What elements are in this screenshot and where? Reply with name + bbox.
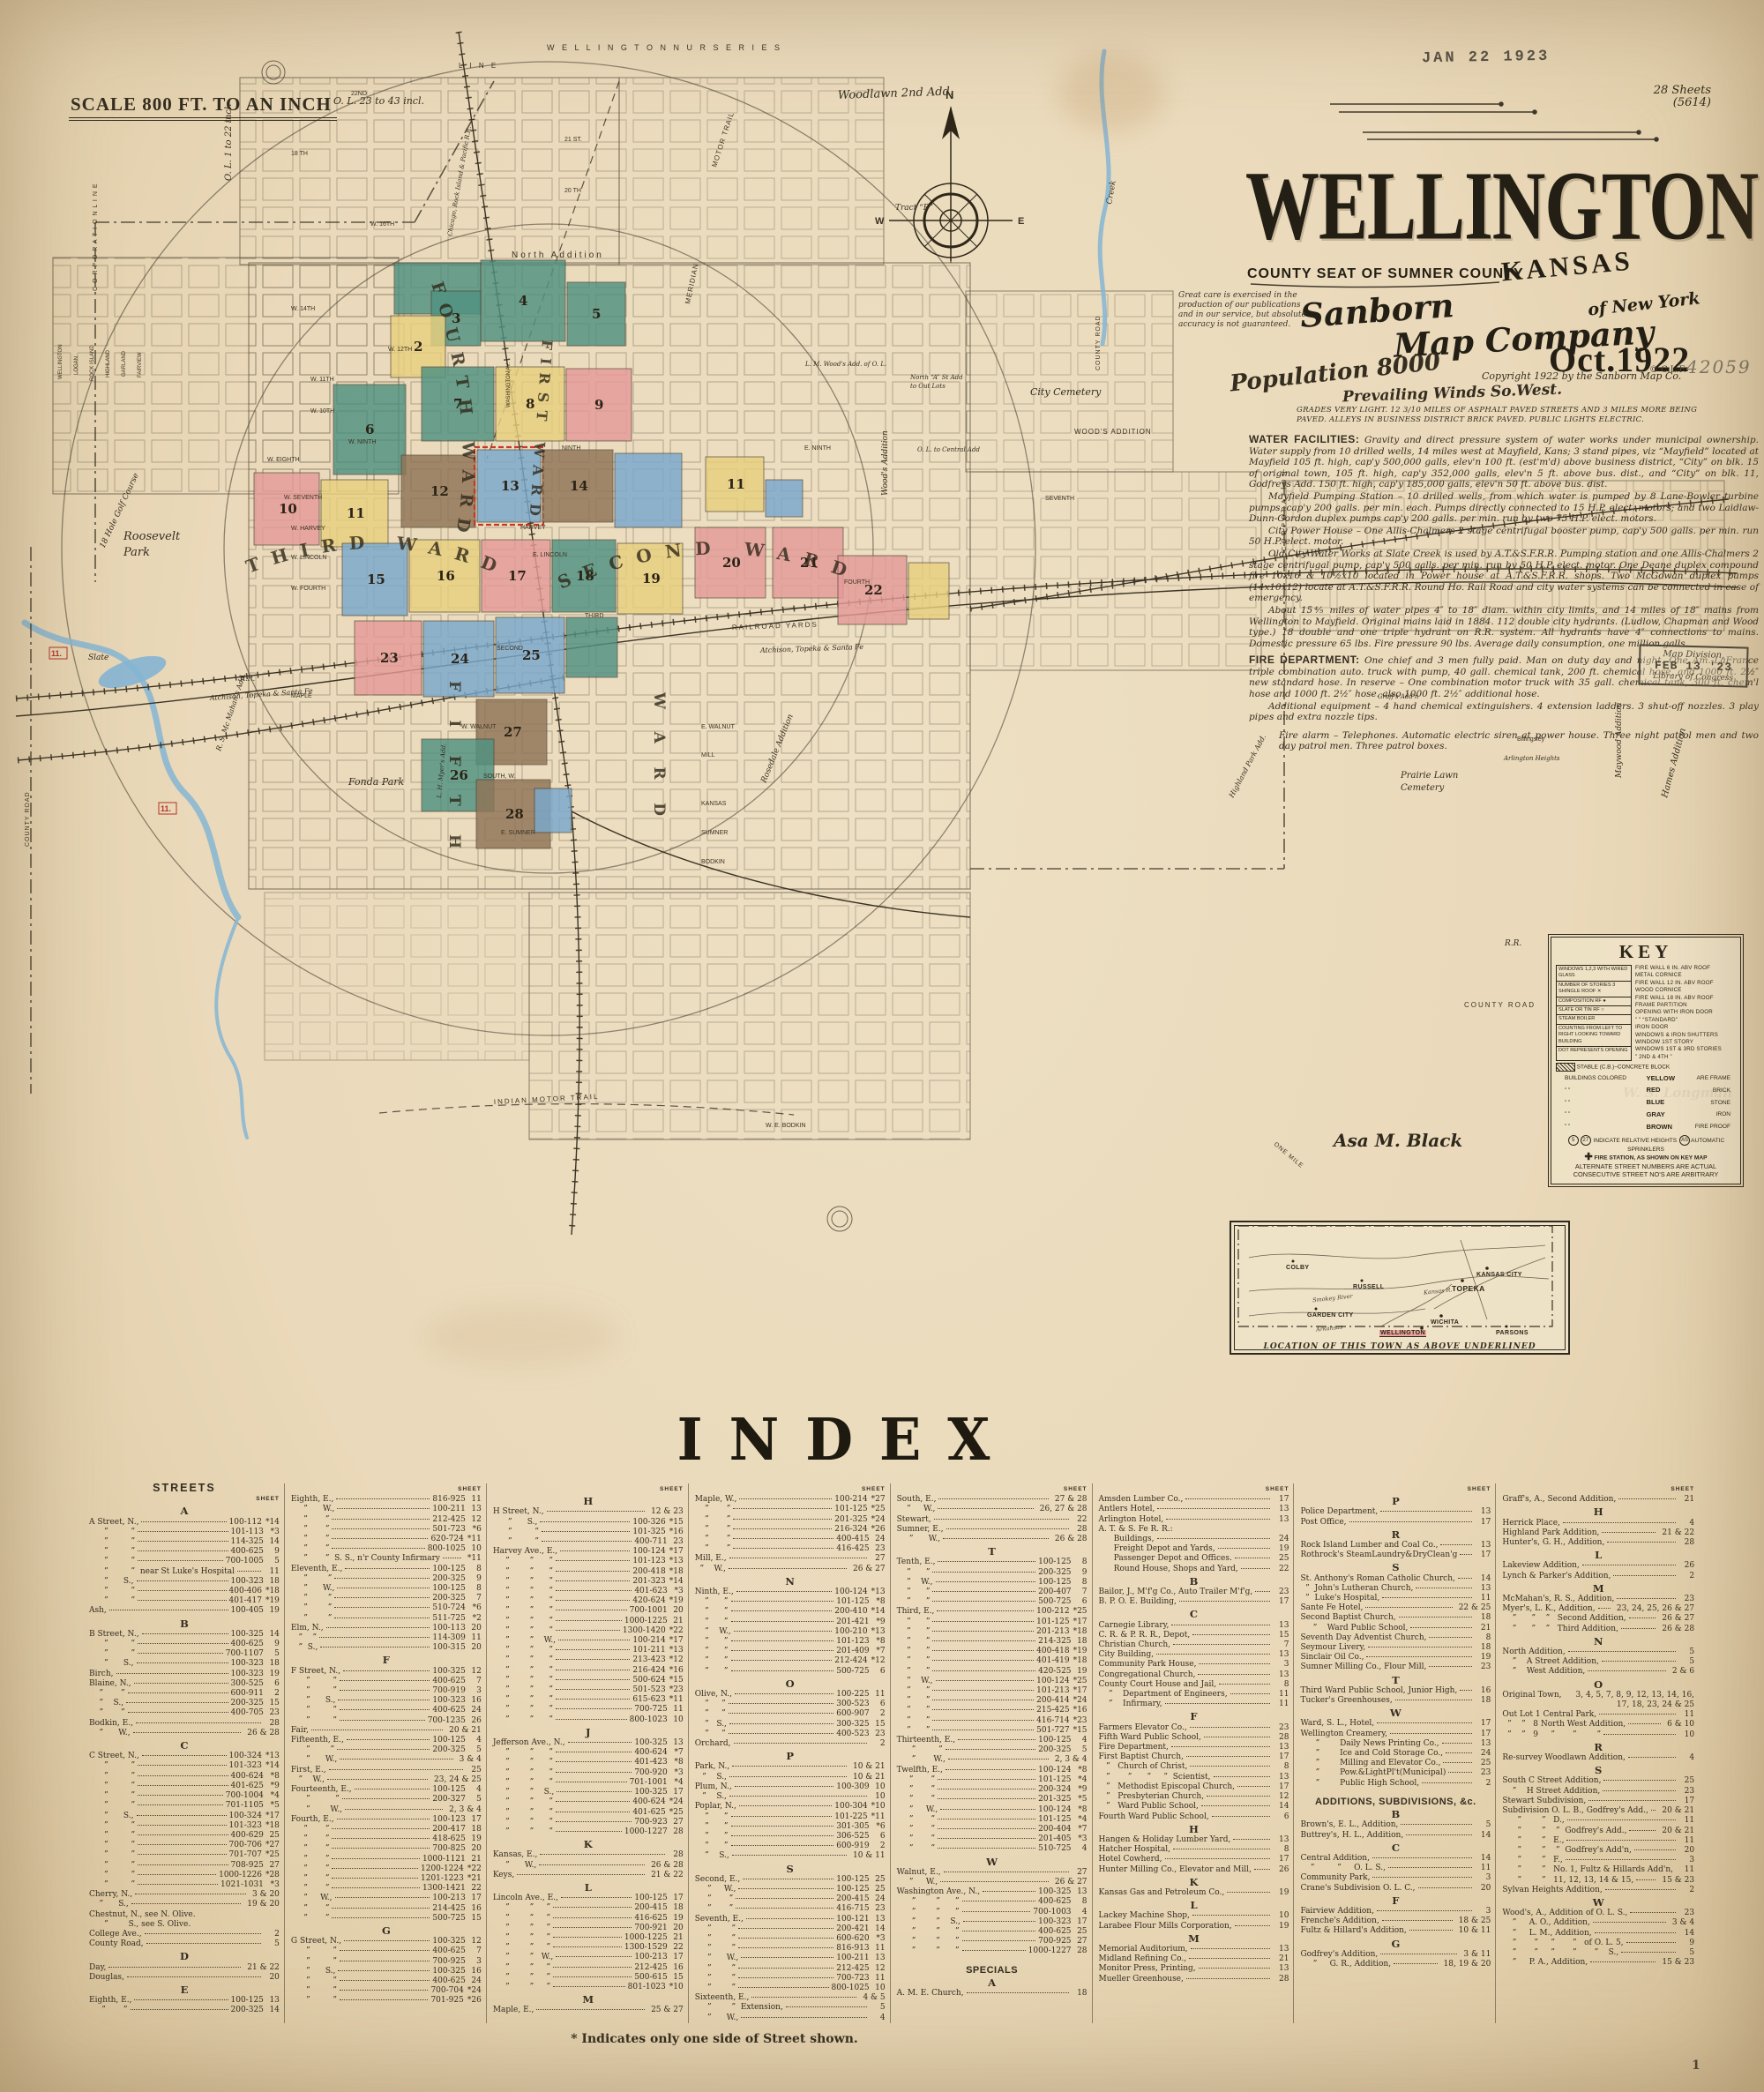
index-entry: ” ”101-325*16 bbox=[493, 1528, 684, 1537]
index-entry-name: Stewart, bbox=[897, 1515, 931, 1525]
index-entry-range: 418-625 bbox=[432, 1834, 465, 1844]
index-entry-sheet: *17 bbox=[669, 1636, 684, 1646]
dotted-leader bbox=[556, 1590, 632, 1591]
dotted-leader bbox=[1440, 1544, 1472, 1545]
index-entry: Carnegie Library,13 bbox=[1099, 1621, 1289, 1631]
index-entry-name: College Ave., bbox=[89, 1930, 142, 1939]
index-entry-name: Congregational Church, bbox=[1099, 1670, 1196, 1680]
index-entry-name: ” ” ” Godfrey's Add., bbox=[1502, 1827, 1626, 1836]
dotted-leader bbox=[732, 1766, 847, 1767]
index-entry-name: ” ” bbox=[897, 1597, 931, 1607]
dotted-leader bbox=[1372, 1877, 1472, 1878]
dotted-leader bbox=[1349, 1521, 1473, 1522]
index-entry-name: Kansas, E., bbox=[493, 1850, 538, 1860]
index-entry-sheet: *18 bbox=[265, 1587, 280, 1596]
index-entry-sheet: *7 bbox=[873, 1647, 886, 1656]
index-entry-sheet: *9 bbox=[873, 1618, 886, 1627]
index-entry: ” ”701-1105*5 bbox=[89, 1801, 280, 1811]
dotted-leader bbox=[1192, 1915, 1271, 1916]
index-entry-sheet: 20 bbox=[469, 1844, 482, 1854]
index-entry-sheet: 15 bbox=[469, 1914, 482, 1924]
index-entry: ” W.,23, 24 & 25 bbox=[291, 1775, 482, 1785]
index-entry-sheet: 11 bbox=[1682, 1836, 1694, 1846]
index-entry-name: ” ” ” bbox=[493, 1587, 553, 1596]
index-entry: ” ”400-70523 bbox=[89, 1708, 280, 1718]
index-entry-name: ” ” bbox=[897, 1588, 931, 1597]
index-entry-sheet: 4 bbox=[469, 1785, 482, 1795]
index-entry-name: A. T. & S. Fe R. R.: bbox=[1099, 1525, 1173, 1535]
index-entry-name: Frenche's Addition, bbox=[1300, 1916, 1379, 1926]
index-entry-name: ” ” 11, 12, 13, 14 & 15, bbox=[1502, 1876, 1633, 1886]
index-entry: Sumner Milling Co., Flour Mill,23 bbox=[1300, 1662, 1491, 1672]
index-entry-name: ” W., bbox=[695, 1885, 736, 1894]
index-entry: Memorial Auditorium,13 bbox=[1099, 1945, 1289, 1954]
index-entry-name: ” Pow.&LightPl't(Municipal) bbox=[1300, 1768, 1446, 1778]
index-entry-name: ” S., bbox=[291, 1696, 336, 1706]
index-entry: C. R. & P. R. R., Depot,15 bbox=[1099, 1631, 1289, 1640]
map-label: C O R P O R A T I O N L I N E bbox=[93, 183, 99, 292]
index-entry-sheet: 17 bbox=[1276, 1495, 1289, 1505]
map-label: E. SUMNER bbox=[501, 830, 535, 836]
index-entry: ” ” ”1300-1420*22 bbox=[493, 1626, 684, 1636]
index-entry-range: 615-623 bbox=[632, 1695, 665, 1705]
county-subtitle: COUNTY SEAT OF SUMNER COUNTY bbox=[1247, 266, 1524, 282]
index-entry: ” ”200-404*7 bbox=[897, 1825, 1088, 1834]
index-entry-sheet: 13 bbox=[1276, 1621, 1289, 1631]
index-entry-name: ” Luke's Hospital, bbox=[1300, 1594, 1379, 1603]
index-entry-name: ” ” ” ” ” S., bbox=[1502, 1948, 1618, 1958]
index-entry: ” ” ”700-92120 bbox=[493, 1924, 684, 1933]
index-entry-range: 400-406 bbox=[229, 1587, 262, 1596]
dotted-leader bbox=[556, 1956, 632, 1957]
index-entry-name: ” ” bbox=[291, 1976, 337, 1986]
dotted-leader bbox=[126, 1702, 228, 1703]
compass-w: W bbox=[875, 216, 885, 227]
index-entry: Kansas, E.,28 bbox=[493, 1850, 684, 1860]
dotted-leader bbox=[1568, 1651, 1676, 1652]
index-entry-range: 114-309 bbox=[432, 1633, 465, 1643]
dotted-leader bbox=[536, 2009, 645, 2010]
key-right-list: FIRE WALL 6 IN. ABV ROOFMETAL CORNICEFIR… bbox=[1635, 965, 1736, 1061]
index-entry-range: 100-113 bbox=[432, 1624, 465, 1633]
index-entry: Lackey Machine Shop,10 bbox=[1099, 1911, 1289, 1921]
index-entry: A. M. E. Church,18 bbox=[897, 1989, 1088, 1999]
index-entry: Walnut, E.,27 bbox=[897, 1868, 1088, 1878]
index-entry-name: Eighth, E., bbox=[89, 1996, 131, 2006]
index-entry: ” Ward Public School,21 bbox=[1300, 1624, 1491, 1633]
index-entry-sheet: 16 bbox=[469, 1967, 482, 1976]
index-entry-name: B. P. O. E. Building, bbox=[1099, 1597, 1177, 1607]
map-label: ROCK ISLAND bbox=[90, 345, 95, 381]
dotted-leader bbox=[556, 1630, 620, 1631]
index-entry-sheet: 27 bbox=[1075, 1868, 1088, 1878]
index-entry: ” ” ”212-42516 bbox=[493, 1963, 684, 1973]
index-entry-name: ” ” bbox=[291, 1795, 340, 1804]
index-entry: Blaine, N.,300-5256 bbox=[89, 1679, 280, 1689]
index-entry-name: ” ” bbox=[897, 1795, 936, 1804]
inset-caption: LOCATION OF THIS TOWN AS ABOVE UNDERLINE… bbox=[1231, 1342, 1568, 1351]
dotted-leader bbox=[1199, 1663, 1270, 1664]
dotted-leader bbox=[1607, 1542, 1676, 1543]
dotted-leader bbox=[946, 1749, 1035, 1750]
index-entry-sheet: *6 bbox=[469, 1525, 482, 1535]
index-entry: ” ” near St Luke's Hospital11 bbox=[89, 1567, 280, 1577]
key-legend-line: FIRE WALL 18 IN. ABV ROOF bbox=[1635, 995, 1736, 1002]
facilities-text: WATER FACILITIES: Gravity and direct pre… bbox=[1249, 434, 1759, 753]
fire-station-icon: ✚ bbox=[1584, 1152, 1592, 1162]
key-legend-line: WINDOWS & IRON SHUTTERS bbox=[1635, 1032, 1736, 1039]
index-entry: Fourteenth, E.,100-1254 bbox=[291, 1785, 482, 1795]
dotted-leader bbox=[1186, 1978, 1271, 1979]
index-entry: Passenger Depot and Offices.25 bbox=[1099, 1554, 1289, 1564]
index-entry-name: Olive, N., bbox=[695, 1690, 732, 1700]
index-entry: ” ” ”400-624*7 bbox=[493, 1748, 684, 1758]
index-entry-sheet: 13 bbox=[1478, 1584, 1491, 1594]
dotted-leader bbox=[1254, 1869, 1271, 1870]
index-entry-name: ” ” bbox=[897, 1568, 931, 1578]
index-entry-sheet: 6 bbox=[873, 1667, 886, 1677]
index-entry-name: ” W., bbox=[897, 1755, 946, 1765]
map-label: WASHINGTON AV. bbox=[506, 362, 512, 407]
dotted-leader bbox=[332, 1848, 430, 1849]
index-entry: Elm, N.,100-11320 bbox=[291, 1624, 482, 1633]
index-column: SHEETEighth, E.,816-92511 ” W.,100-21113… bbox=[284, 1483, 486, 2023]
index-entry: ” ”500-7256 bbox=[897, 1597, 1088, 1607]
dotted-leader bbox=[332, 1548, 424, 1549]
index-section-letter: B bbox=[1300, 1810, 1491, 1819]
dotted-leader bbox=[109, 1610, 228, 1610]
index-entry-range: 100-124 bbox=[1036, 1677, 1069, 1686]
index-entry-sheet: 3 bbox=[1276, 1660, 1289, 1670]
index-entry-name: ” ” bbox=[695, 1924, 736, 1934]
index-entry: ” ”800-102510 bbox=[695, 1984, 886, 1993]
index-entry-range: 700-704 bbox=[430, 1986, 463, 1996]
index-entry-name: ” ” bbox=[291, 1844, 330, 1854]
sprinkler-badge: AS bbox=[1679, 1135, 1690, 1146]
index-entry-sheet: 20 bbox=[469, 1624, 482, 1633]
index-entry-range: 420-525 bbox=[1038, 1667, 1071, 1677]
index-entry-sheet: *23 bbox=[1073, 1716, 1088, 1726]
dotted-leader bbox=[736, 1908, 833, 1909]
dotted-leader bbox=[1382, 1920, 1453, 1921]
index-entry-sheet: *24 bbox=[871, 1515, 886, 1525]
index-section-letter: R bbox=[1502, 1743, 1694, 1752]
index-entry: ” ”212-42512 bbox=[291, 1515, 482, 1525]
index-entry-name: ” ” bbox=[291, 1633, 317, 1643]
index-entry-name: ” ” bbox=[897, 1815, 936, 1825]
index-entry-name: ” Church of Christ, bbox=[1099, 1762, 1188, 1772]
index-entry-name: ” ” bbox=[695, 1974, 736, 1984]
index-entry: ” H Street Addition,23 bbox=[1502, 1787, 1694, 1797]
dotted-leader bbox=[1613, 1575, 1676, 1576]
index-entry: ” ”216-324*26 bbox=[695, 1525, 886, 1535]
index-entry-sheet: 13 bbox=[1478, 1739, 1491, 1749]
index-entry: Kansas Gas and Petroleum Co.,19 bbox=[1099, 1888, 1289, 1898]
index-entry-name: ” Presbyterian Church, bbox=[1099, 1792, 1205, 1802]
index-section-letter: C bbox=[1099, 1610, 1289, 1619]
index-entry-name: Chestnut, N., see N. Olive. bbox=[89, 1910, 196, 1920]
dotted-leader bbox=[334, 1607, 430, 1608]
dotted-leader bbox=[733, 1538, 833, 1539]
index-entry-sheet: 18 bbox=[1478, 1613, 1491, 1623]
index-entry-sheet: *18 bbox=[265, 1821, 280, 1831]
map-label: to Out Lots bbox=[910, 383, 946, 390]
dotted-leader bbox=[556, 1679, 630, 1680]
index-entry-name: Keys, bbox=[493, 1871, 514, 1880]
index-entry-sheet: 22 bbox=[1276, 1565, 1289, 1574]
index-entry-range: 101-125 bbox=[1038, 1775, 1071, 1785]
index-entry-sheet: 5 bbox=[873, 2003, 886, 2013]
index-entry-sheet: 18 bbox=[1075, 1989, 1088, 1999]
index-entry-range: 200-325 bbox=[432, 1745, 465, 1755]
index-entry: Hunter's, G. H., Addition,28 bbox=[1502, 1538, 1694, 1548]
water-paragraph: About 15⅘ miles of water pipes 4″ to 18″… bbox=[1249, 605, 1759, 649]
dotted-leader bbox=[345, 1568, 430, 1569]
index-entry-range: 400-625 bbox=[432, 1677, 465, 1686]
index-entry-name: ” ” bbox=[89, 1537, 135, 1547]
index-entry-name: Sumner Milling Co., Flour Mill, bbox=[1300, 1662, 1426, 1672]
index-entry-name: ” Milling and Elevator Co., bbox=[1300, 1759, 1440, 1768]
index-entry: ” Ward Public School,14 bbox=[1099, 1802, 1289, 1812]
index-entry-range: 212-424 bbox=[834, 1656, 867, 1666]
index-entry: ” Pow.&LightPl't(Municipal)23 bbox=[1300, 1768, 1491, 1778]
index-entry-name: ” ” bbox=[897, 1785, 936, 1795]
dotted-leader bbox=[116, 1673, 228, 1674]
index-entry: ” ” ”200-41518 bbox=[493, 1903, 684, 1913]
dotted-leader bbox=[556, 1670, 630, 1670]
dotted-leader bbox=[1192, 1634, 1270, 1635]
index-entry-name: Harvey Ave., E., bbox=[493, 1547, 557, 1557]
index-section-letter: W bbox=[1300, 1708, 1491, 1718]
index-entry-name: St. Anthony's Roman Catholic Church, bbox=[1300, 1574, 1454, 1584]
index-entry: Highland Park Addition,21 & 22 bbox=[1502, 1528, 1694, 1538]
index-entry-sheet: 26, 27 & 28 bbox=[1040, 1505, 1088, 1514]
index-entry-sheet: 13 bbox=[1478, 1507, 1491, 1517]
index-entry-name: Lynch & Parker's Addition, bbox=[1502, 1572, 1611, 1581]
index-entry-sheet: *19 bbox=[1073, 1647, 1088, 1656]
dotted-leader bbox=[138, 1560, 223, 1561]
dotted-leader bbox=[1190, 1766, 1270, 1767]
map-label: Fonda Park bbox=[348, 776, 405, 788]
dotted-leader bbox=[138, 1541, 228, 1542]
sheet-number: 26 bbox=[450, 767, 468, 783]
index-entry-name: ” ” bbox=[695, 1637, 729, 1647]
index-entry-sheet: 24 bbox=[469, 1976, 482, 1986]
index-entry-range: 100-325 bbox=[1038, 1887, 1071, 1897]
index-column: STREETSSHEETAA Street, N.,100-112*14 ” ”… bbox=[83, 1483, 284, 2023]
index-entry-range: 701-1001 bbox=[630, 1778, 668, 1788]
map-label: COUNTY ROAD bbox=[25, 791, 31, 847]
index-entry-range: 100-323 bbox=[231, 1670, 264, 1679]
index-entry-name: ” ” bbox=[291, 1855, 330, 1864]
dotted-leader bbox=[237, 1571, 261, 1572]
dotted-leader bbox=[332, 1519, 430, 1520]
index-entry-range: 1000-1225 bbox=[624, 1617, 668, 1626]
index-entry-range: 401-625 bbox=[632, 1808, 665, 1818]
dotted-leader bbox=[1235, 1558, 1271, 1558]
index-entry-sheet: 21 bbox=[1276, 1954, 1289, 1964]
dotted-leader bbox=[134, 1683, 228, 1684]
dotted-leader bbox=[1588, 1670, 1666, 1671]
dotted-leader bbox=[1409, 1930, 1453, 1931]
index-entry-sheet: 19 & 20 bbox=[247, 1900, 280, 1909]
index-entry-range: 500-624 bbox=[632, 1676, 665, 1685]
index-entry-range: 700-925 bbox=[432, 1957, 465, 1967]
index-entry: Lakeview Addition,26 bbox=[1502, 1561, 1694, 1571]
index-entry: Hangen & Holiday Lumber Yard,13 bbox=[1099, 1835, 1289, 1845]
map-label: SEVENTH bbox=[1045, 496, 1074, 502]
index-entry: ” Milling and Elevator Co.,25 bbox=[1300, 1759, 1491, 1768]
dotted-leader bbox=[337, 1508, 430, 1509]
index-entry: Rock Island Lumber and Coal Co.,13 bbox=[1300, 1541, 1491, 1550]
index-entry-name: Walnut, E., bbox=[897, 1868, 941, 1878]
index-entry: ” W.,26 & 27 bbox=[695, 1565, 886, 1574]
inset-city: COLBY bbox=[1286, 1265, 1310, 1271]
dotted-leader bbox=[553, 1976, 632, 1977]
key-symbol-row: NUMBER OF STORIES 3 SHINGLE ROOF ✕ bbox=[1557, 982, 1631, 997]
index-entry-range: 700-1107 bbox=[226, 1649, 264, 1659]
index-entry-range: 400-523 bbox=[836, 1730, 869, 1739]
index-entry-range: 400-624 bbox=[632, 1797, 665, 1807]
index-entry-range: 100-325 bbox=[432, 1667, 465, 1677]
index-entry: Rothrock's SteamLaundry&DryClean'g17 bbox=[1300, 1550, 1491, 1560]
index-entry-name: First Baptist Church, bbox=[1099, 1752, 1184, 1762]
dotted-leader bbox=[1448, 1772, 1472, 1773]
index-entry-sheet: *6 bbox=[469, 1603, 482, 1613]
index-entry-sheet: *25 bbox=[1073, 1677, 1088, 1686]
index-entry-range: 201-325 bbox=[1038, 1795, 1071, 1804]
map-block bbox=[566, 617, 617, 677]
index-entry: ” ” ”201-323*14 bbox=[493, 1577, 684, 1587]
index-entry-name: ” ” ” bbox=[493, 1567, 553, 1577]
dotted-leader bbox=[542, 1531, 630, 1532]
index-entry-sheet: 5 bbox=[469, 1745, 482, 1755]
index-entry-name: Post Office, bbox=[1300, 1518, 1346, 1528]
index-entry: ” ”416-42523 bbox=[695, 1544, 886, 1554]
map-label: W E L L I N G T O N N U R S E R I E S bbox=[547, 43, 782, 52]
index-entry-sheet: *13 bbox=[265, 1752, 280, 1761]
index-entry-sheet: 25 bbox=[469, 1766, 482, 1775]
index-entry-name: Jefferson Ave., N., bbox=[493, 1738, 565, 1748]
index-entry-name: ” ” bbox=[89, 1761, 135, 1771]
index-entry-name: A. M. E. Church, bbox=[897, 1989, 964, 1999]
map-label: E. LINCOLN bbox=[533, 552, 567, 558]
map-label: LOGAN bbox=[74, 356, 79, 375]
index-entry: ” ”101-123*8 bbox=[695, 1637, 886, 1647]
dotted-leader bbox=[142, 1633, 228, 1634]
index-entry-range: 420-624 bbox=[632, 1596, 665, 1606]
index-entry-name: ” W., bbox=[291, 1505, 334, 1514]
index-entry-sheet: 25 & 27 bbox=[651, 2006, 684, 2015]
index-entry-name: ” ” bbox=[89, 1850, 135, 1860]
dotted-leader bbox=[1366, 1656, 1472, 1657]
index-entry-sheet: 25 bbox=[1276, 1554, 1289, 1564]
index-entry-sheet: 18, 19 & 20 bbox=[1444, 1960, 1491, 1969]
index-entry: ” W.,26 & 27 bbox=[897, 1878, 1088, 1887]
index-entry: ” Infirmary,11 bbox=[1099, 1700, 1289, 1709]
index-entry: Stewart,22 bbox=[897, 1515, 1088, 1525]
index-entry: ” ”201-421*9 bbox=[695, 1618, 886, 1627]
index-section-letter: W bbox=[897, 1857, 1088, 1867]
index-entry-name: ” W., bbox=[695, 1627, 731, 1637]
index-entry-sheet: 27 bbox=[671, 1818, 684, 1827]
index-entry: ” W.,100-1258 bbox=[291, 1584, 482, 1594]
index-entry-sheet: 27 bbox=[267, 1861, 280, 1871]
index-entry-range: 212-425 bbox=[836, 1964, 869, 1974]
index-entry-sheet: 17 bbox=[1682, 1797, 1694, 1806]
index-entry: ” S.,100-32318 bbox=[89, 1577, 280, 1587]
index-entry-sheet: 11 bbox=[1478, 1864, 1491, 1873]
index-entry: ” ”700-9193 bbox=[291, 1686, 482, 1696]
index-entry-name: ” ” bbox=[897, 1656, 931, 1666]
index-entry-name: ” ” bbox=[695, 1607, 729, 1617]
index-entry-name: ” W., bbox=[493, 1861, 536, 1871]
key-color-row: ” ”REDBRICK bbox=[1558, 1086, 1734, 1096]
dotted-leader bbox=[334, 1618, 430, 1618]
index-entry-sheet: 27 bbox=[873, 1554, 886, 1564]
index-entry-range: 200-404 bbox=[1038, 1825, 1071, 1834]
index-entry: ” S.,10 & 21 bbox=[695, 1773, 886, 1782]
dotted-leader bbox=[1458, 1578, 1472, 1579]
index-entry-sheet: *2 bbox=[469, 1614, 482, 1624]
index-entry-sheet: 16 bbox=[469, 1904, 482, 1914]
index-entry-sheet: *4 bbox=[1075, 1815, 1088, 1825]
index-entry-range: 100-125 bbox=[432, 1584, 465, 1594]
index-entry: ” ”101-125*4 bbox=[897, 1775, 1088, 1785]
index-entry-sheet: *27 bbox=[265, 1841, 280, 1850]
index-entry-range: 416-715 bbox=[836, 1904, 869, 1914]
index-entry: Round House, Shops and Yard,22 bbox=[1099, 1565, 1289, 1574]
index-entry-name: ” ” ” bbox=[493, 1748, 553, 1758]
index-entry: ” ” ”101-211*13 bbox=[493, 1646, 684, 1655]
index-entry: ” ”101-323*18 bbox=[89, 1821, 280, 1831]
dotted-leader bbox=[932, 1660, 1034, 1661]
index-entry-name: ” Ward Public School, bbox=[1300, 1624, 1408, 1633]
index-entry: ” ”416-714*23 bbox=[897, 1716, 1088, 1726]
index-entry-sheet: 12 bbox=[873, 1964, 886, 1974]
index-entry-range: 700-919 bbox=[432, 1686, 465, 1696]
dotted-leader bbox=[539, 1864, 645, 1865]
index-entry-sheet: 11 bbox=[469, 1495, 482, 1505]
index-entry-name: South, E., bbox=[897, 1495, 937, 1505]
index-entry: ” ”500-7256 bbox=[695, 1667, 886, 1677]
index-entry: Tucker's Greenhouses,18 bbox=[1300, 1696, 1491, 1706]
index-entry: Hotel Cowherd,17 bbox=[1099, 1855, 1289, 1864]
dotted-leader bbox=[1599, 1714, 1676, 1715]
index-entry-name: ” ” bbox=[291, 1677, 337, 1686]
index-entry: ” ”200-3255 bbox=[897, 1745, 1088, 1755]
index-entry-range: 500-725 bbox=[432, 1914, 465, 1924]
dotted-leader bbox=[729, 1713, 834, 1714]
index-entry: Larabee Flour Mills Corporation,19 bbox=[1099, 1922, 1289, 1931]
index-entry-sheet: 26 bbox=[469, 1716, 482, 1726]
index-entry: Frenche's Addition,18 & 25 bbox=[1300, 1916, 1491, 1926]
index-entry: ” P. A., Addition,15 & 23 bbox=[1502, 1958, 1694, 1968]
index-entry-range: 600-919 bbox=[836, 1842, 869, 1851]
index-entry-sheet: *13 bbox=[871, 1588, 886, 1597]
dotted-leader bbox=[1442, 1743, 1473, 1744]
dotted-leader bbox=[938, 1789, 1035, 1789]
index-entry: ” ”701-707*25 bbox=[89, 1850, 280, 1860]
index-entry: ” ”501-727*15 bbox=[897, 1726, 1088, 1736]
key-legend-line: METAL CORNICE bbox=[1635, 972, 1736, 979]
index-entry: ” W.,26, 27 & 28 bbox=[897, 1505, 1088, 1514]
index-entry-name: Memorial Auditorium, bbox=[1099, 1945, 1188, 1954]
dotted-leader bbox=[556, 1752, 632, 1752]
sheet-number: 14 bbox=[570, 478, 588, 494]
index-section-letter: A bbox=[897, 1978, 1088, 1988]
dotted-leader bbox=[332, 1878, 418, 1879]
